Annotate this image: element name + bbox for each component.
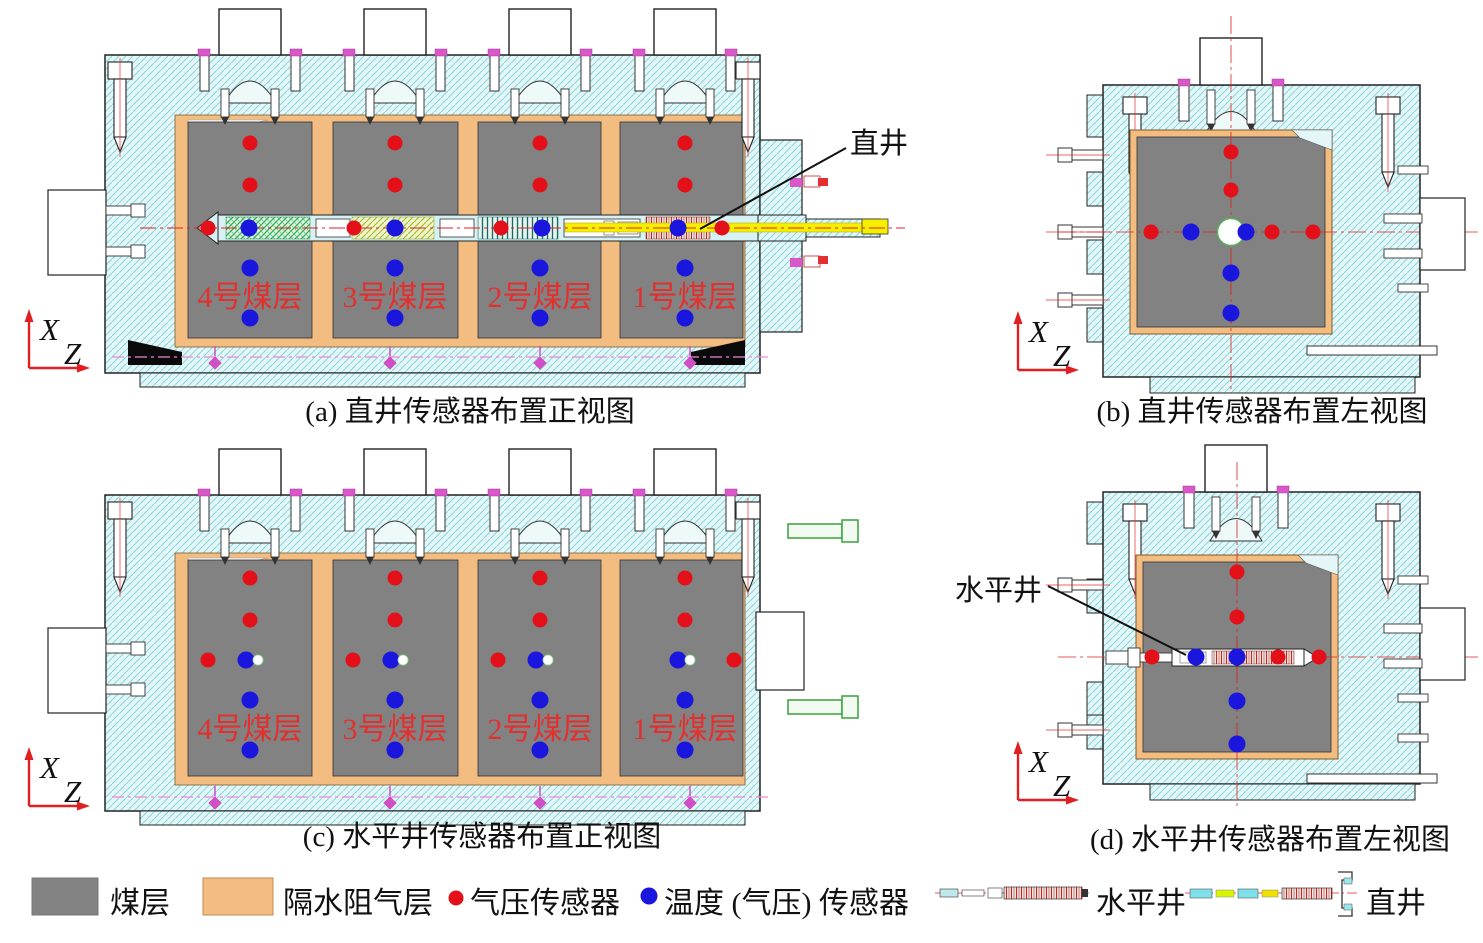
seam-label: 4号煤层 bbox=[198, 281, 303, 314]
sensor-red bbox=[1230, 610, 1245, 625]
bolt bbox=[131, 642, 145, 655]
sensor-blue bbox=[1229, 649, 1246, 666]
sensor-red bbox=[678, 178, 693, 193]
sensor-red bbox=[243, 571, 258, 586]
panel-c: 4号煤层3号煤层2号煤层1号煤层 X Z (c) 水平井传感器布置正视图 bbox=[25, 449, 859, 853]
sensor-red bbox=[494, 221, 509, 236]
base-plate bbox=[1150, 784, 1415, 800]
sensor-red bbox=[388, 571, 403, 586]
wall-tab bbox=[1087, 95, 1103, 137]
axis-b: X Z bbox=[1014, 311, 1080, 375]
wall-tab bbox=[1087, 682, 1103, 716]
bolt bbox=[131, 245, 145, 258]
sensor-blue bbox=[670, 652, 687, 669]
sensor-red bbox=[1312, 650, 1327, 665]
fitting bbox=[818, 256, 828, 264]
axis-z-label: Z bbox=[1053, 768, 1071, 803]
sensor-red bbox=[727, 653, 742, 668]
bolt bbox=[1384, 249, 1422, 258]
bolt bbox=[1398, 734, 1428, 742]
sensor-red bbox=[678, 136, 693, 151]
sensor-red bbox=[678, 613, 693, 628]
bolt bbox=[106, 644, 132, 653]
sensor-red bbox=[388, 178, 403, 193]
bolt bbox=[1398, 694, 1428, 702]
sensor-red bbox=[1230, 565, 1245, 580]
sensor-red bbox=[1306, 225, 1321, 240]
bolt bbox=[131, 204, 145, 217]
sensor-blue bbox=[1183, 224, 1200, 241]
sensor-blue bbox=[1223, 265, 1240, 282]
right-port-block bbox=[756, 612, 804, 690]
legend-vertical-well-drawing bbox=[1185, 872, 1360, 916]
sensor-blue bbox=[1188, 649, 1205, 666]
fitting bbox=[818, 178, 828, 186]
bolt bbox=[1398, 284, 1428, 292]
bolt bbox=[106, 206, 132, 215]
drain-pipe bbox=[1307, 774, 1437, 783]
panel-b: X Z (b) 直井传感器布置左视图 bbox=[1014, 16, 1479, 428]
sensor-red bbox=[388, 136, 403, 151]
horizontal-well-callout: 水平井 bbox=[955, 574, 1042, 607]
sensor-blue bbox=[1238, 224, 1255, 241]
sensor-blue bbox=[238, 652, 255, 669]
base-plate bbox=[140, 373, 745, 387]
seam-label: 1号煤层 bbox=[633, 281, 738, 314]
axis-c: X Z bbox=[25, 747, 91, 811]
sensor-red bbox=[1271, 650, 1286, 665]
sensor-red bbox=[1224, 145, 1239, 160]
legend: 煤层 隔水阻气层 气压传感器 温度 (气压) 传感器 水平井 直井 bbox=[32, 872, 1426, 920]
axis-z-label: Z bbox=[1053, 338, 1071, 373]
panel-d: 水平井 X Z (d) 水平井传感器布置左视图 bbox=[955, 445, 1478, 856]
wall-tab bbox=[1087, 502, 1103, 544]
sensor-blue bbox=[534, 220, 551, 237]
sensor-red bbox=[678, 571, 693, 586]
legend-label-aquiclude: 隔水阻气层 bbox=[283, 887, 433, 920]
figure-canvas: 4号煤层3号煤层2号煤层1号煤层 直井 X Z (a) 直井传感器布置正视图 bbox=[0, 0, 1483, 943]
wall-tab bbox=[1087, 240, 1103, 274]
wall-tab bbox=[1087, 172, 1103, 206]
sensor-red bbox=[243, 178, 258, 193]
sensor-red bbox=[491, 653, 506, 668]
bolt bbox=[1046, 723, 1110, 737]
sensor-red bbox=[346, 653, 361, 668]
seam-label: 4号煤层 bbox=[198, 713, 303, 746]
sensor-red bbox=[243, 613, 258, 628]
fitting bbox=[790, 258, 802, 267]
legend-label-coal: 煤层 bbox=[110, 887, 170, 920]
seam-label: 2号煤层 bbox=[488, 281, 593, 314]
axis-x-label: X bbox=[38, 312, 60, 347]
sensor-red bbox=[533, 571, 548, 586]
sensor-red bbox=[715, 221, 730, 236]
axis-z-label: Z bbox=[64, 774, 82, 809]
legend-swatch-aquiclude bbox=[203, 878, 273, 915]
sensor-blue bbox=[387, 220, 404, 237]
drain-pipe bbox=[1307, 346, 1437, 355]
sensor-red bbox=[1145, 650, 1160, 665]
caption-d: (d) 水平井传感器布置左视图 bbox=[1090, 823, 1450, 856]
wall-tab bbox=[1087, 308, 1103, 342]
bolt bbox=[1384, 659, 1422, 668]
legend-label-horizontal-well: 水平井 bbox=[1096, 887, 1186, 920]
sensor-blue bbox=[1223, 305, 1240, 322]
axis-z-label: Z bbox=[64, 336, 82, 371]
sensor-bore bbox=[253, 655, 263, 665]
sensor-blue bbox=[387, 260, 404, 277]
legend-label-pressure: 气压传感器 bbox=[470, 887, 620, 920]
seam-label: 1号煤层 bbox=[633, 713, 738, 746]
sensor-blue bbox=[532, 692, 549, 709]
left-port-block bbox=[48, 190, 106, 275]
bolt bbox=[1384, 624, 1422, 633]
sensor-blue bbox=[241, 220, 258, 237]
legend-dot-pressure bbox=[449, 891, 464, 906]
sensor-blue bbox=[528, 652, 545, 669]
sensor-blue bbox=[677, 692, 694, 709]
sensor-red bbox=[1224, 183, 1239, 198]
axis-x-label: X bbox=[38, 750, 60, 785]
sensor-red bbox=[388, 613, 403, 628]
sensor-red bbox=[533, 136, 548, 151]
sensor-red bbox=[1265, 225, 1280, 240]
panel-a: 4号煤层3号煤层2号煤层1号煤层 直井 X Z (a) 直井传感器布置正视图 bbox=[25, 9, 909, 428]
sensor-red bbox=[1144, 225, 1159, 240]
seam-label: 3号煤层 bbox=[343, 713, 448, 746]
bolt bbox=[106, 247, 132, 256]
sensor-bore bbox=[685, 655, 695, 665]
fitting bbox=[804, 256, 820, 267]
right-port-block bbox=[1420, 198, 1465, 270]
bolt bbox=[1046, 148, 1110, 162]
legend-label-temperature: 温度 (气压) 传感器 bbox=[664, 887, 909, 920]
sensor-red bbox=[201, 221, 216, 236]
left-port-block bbox=[48, 628, 106, 713]
sensor-blue bbox=[670, 220, 687, 237]
caption-b: (b) 直井传感器布置左视图 bbox=[1096, 395, 1427, 428]
fitting bbox=[804, 176, 820, 187]
sensor-red bbox=[243, 136, 258, 151]
sensor-blue bbox=[387, 692, 404, 709]
caption-a: (a) 直井传感器布置正视图 bbox=[305, 395, 634, 428]
horizontal-well-assembly bbox=[1106, 648, 1318, 667]
vertical-well-callout: 直井 bbox=[850, 127, 908, 160]
axis-d: X Z bbox=[1014, 741, 1080, 805]
sensor-blue bbox=[532, 260, 549, 277]
sensor-blue bbox=[383, 652, 400, 669]
fitting bbox=[790, 178, 802, 187]
axis-a: X Z bbox=[25, 309, 91, 373]
bolt bbox=[1046, 293, 1110, 307]
sensor-bore bbox=[543, 655, 553, 665]
axis-x-label: X bbox=[1027, 314, 1049, 349]
sensor-red bbox=[347, 221, 362, 236]
sensor-blue bbox=[1229, 736, 1246, 753]
base-plate bbox=[1150, 377, 1415, 393]
bolt bbox=[1398, 576, 1428, 584]
sensor-bore bbox=[398, 655, 408, 665]
bolt bbox=[1398, 166, 1428, 174]
sensor-red bbox=[201, 653, 216, 668]
sensor-blue bbox=[677, 260, 694, 277]
sensor-blue bbox=[242, 260, 259, 277]
caption-c: (c) 水平井传感器布置正视图 bbox=[303, 820, 661, 853]
bolt bbox=[106, 685, 132, 694]
legend-label-vertical-well: 直井 bbox=[1366, 887, 1426, 920]
legend-swatch-coal bbox=[32, 878, 98, 915]
seam-label: 3号煤层 bbox=[343, 281, 448, 314]
figure-stage: 4号煤层3号煤层2号煤层1号煤层 直井 X Z (a) 直井传感器布置正视图 bbox=[0, 0, 1483, 943]
sensor-red bbox=[533, 613, 548, 628]
sensor-blue bbox=[242, 692, 259, 709]
legend-horizontal-well-drawing bbox=[935, 887, 1090, 899]
sensor-red bbox=[533, 178, 548, 193]
bolt bbox=[1384, 214, 1422, 223]
right-port-block bbox=[1420, 608, 1465, 680]
axis-x-label: X bbox=[1027, 744, 1049, 779]
sensor-blue bbox=[1229, 693, 1246, 710]
bolt bbox=[131, 683, 145, 696]
seam-label: 2号煤层 bbox=[488, 713, 593, 746]
legend-dot-temperature bbox=[641, 888, 658, 905]
